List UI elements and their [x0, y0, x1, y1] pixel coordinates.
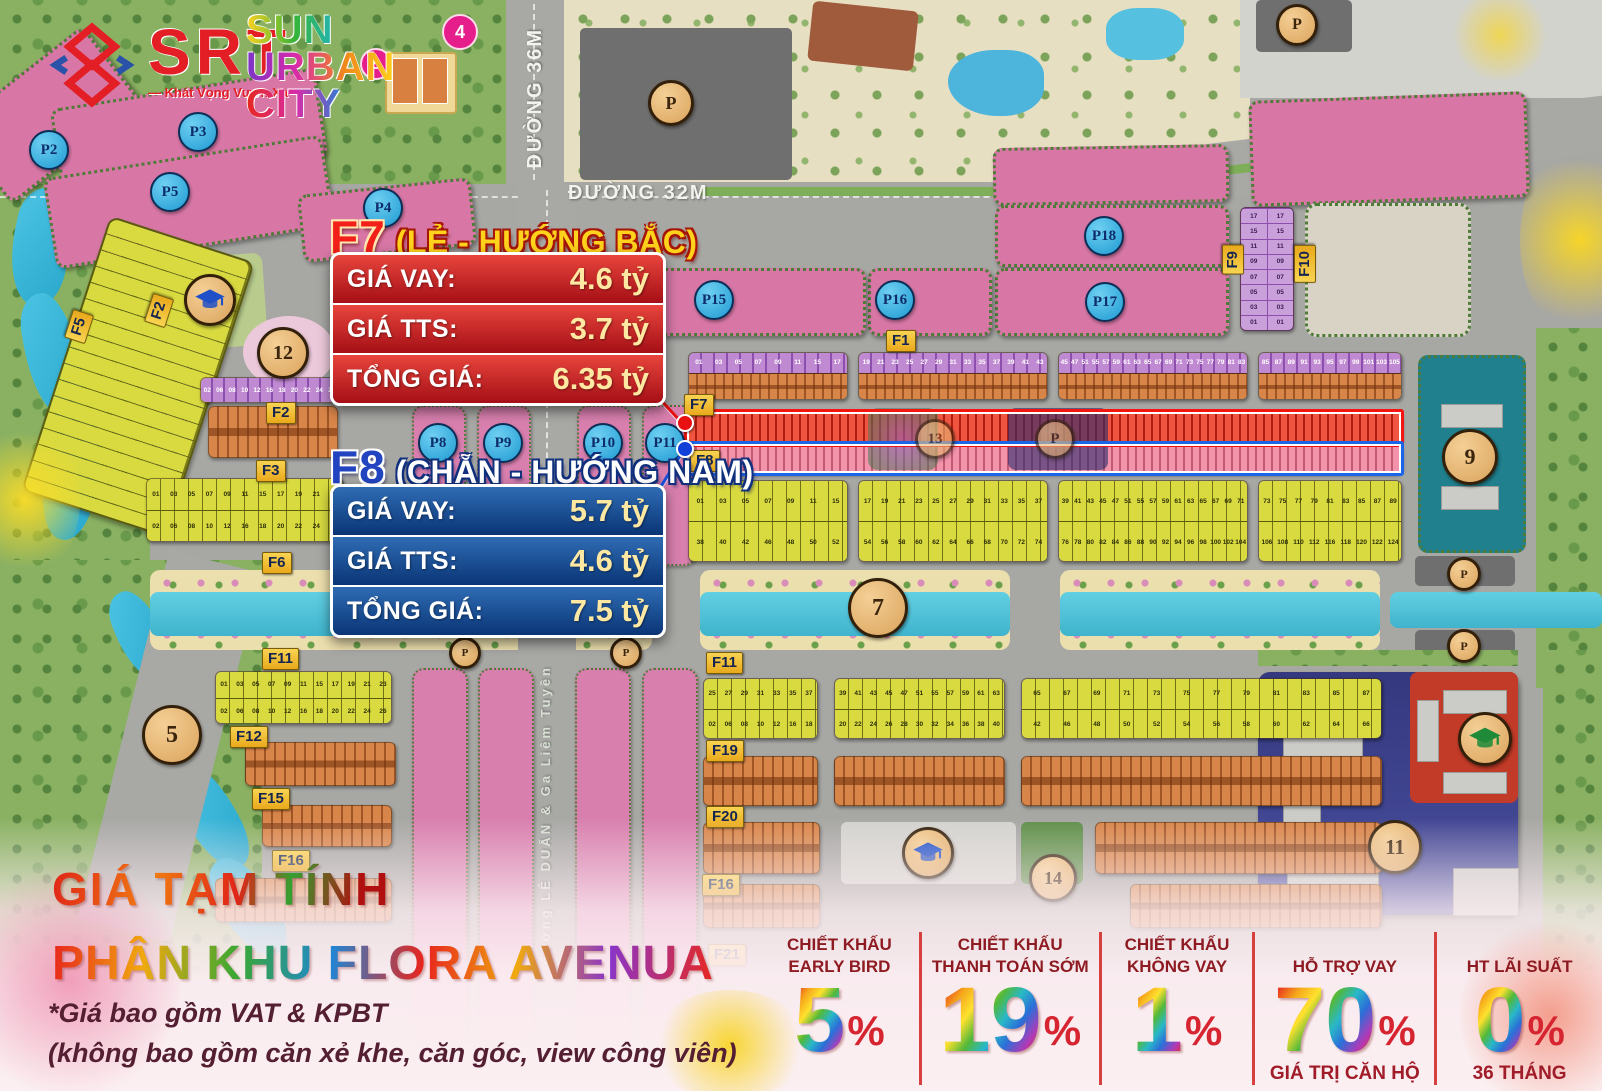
parking-circle-P3: P3 — [178, 112, 218, 152]
lot-strip: 1719212325272931333537545658606264666870… — [858, 480, 1048, 562]
lot-row: 0101 — [1241, 316, 1293, 330]
f7-price-row: GIÁ VAY:4.6 tỷ — [333, 255, 663, 303]
lot-numbers: 38404246485052 — [689, 522, 847, 562]
block-label-F15: F15 — [252, 788, 290, 810]
lot-strip: 0103050709111517192123020608101216182022… — [215, 671, 392, 724]
map-circle-7: 7 — [848, 578, 908, 638]
price-value: 4.6 tỷ — [570, 261, 649, 297]
block-label-F11: F11 — [262, 648, 299, 670]
lot-strip — [245, 742, 396, 786]
map-circle-P: P — [1035, 419, 1075, 459]
lot-numbers: 0103050709111517192123 — [216, 672, 391, 699]
lot-roofs — [859, 373, 1047, 400]
building — [1441, 486, 1499, 510]
road-label-32m: ĐƯỜNG 32M — [568, 182, 709, 205]
lot-numbers: 3941434547515557596163 — [835, 679, 1004, 710]
map-circle-5: 5 — [142, 705, 202, 765]
discount-value: 19% — [939, 980, 1081, 1061]
discount-value: 0% — [1474, 980, 1565, 1061]
lot-numbers: 0103050709111517 — [689, 353, 847, 373]
building — [1443, 772, 1507, 794]
lot-numbers: 424648505254565860626466 — [1022, 710, 1381, 740]
lot-strip — [834, 756, 1005, 806]
lot-numbers: 5456586062646668707274 — [859, 522, 1047, 562]
lot-strip: 19212325272931333537394143 — [858, 352, 1048, 400]
flower-blob-yellow — [1520, 140, 1602, 340]
sun-logo-line3: CITY — [246, 86, 395, 123]
discount-item: CHIẾT KHẤUKHÔNG VAY1% — [1099, 932, 1253, 1085]
percent-sign: % — [1185, 1007, 1222, 1055]
lot-row: 1717 — [1241, 209, 1293, 223]
lot-roofs — [1059, 373, 1247, 400]
sun-logo-line2: URBAN — [246, 49, 395, 86]
sun-urban-city-logo: SUN URBAN CITY — [246, 12, 395, 122]
block-label-F10: F10 — [1294, 245, 1316, 283]
lot-numbers: 0206081012161820222426 — [147, 511, 343, 542]
lot-strip: 6567697173757779818385874246485052545658… — [1021, 678, 1382, 739]
discount-number: 1 — [1132, 980, 1183, 1061]
lot-strip — [1021, 756, 1382, 806]
road-label-36m: ĐƯỜNG 36M — [524, 28, 547, 169]
map-circle-P: P — [449, 637, 481, 669]
lot-row: 0707 — [1241, 270, 1293, 284]
f7-price-row: TỔNG GIÁ:6.35 tỷ — [333, 353, 663, 403]
lot-roofs — [1259, 373, 1401, 400]
f8-price-row: GIÁ TTS:4.6 tỷ — [333, 535, 663, 585]
masterplan-poster: ĐƯỜNG 36M ĐƯỜNG 32M đường LÊ DUẨN & Ga L… — [0, 0, 1602, 1091]
block-label-F3: F3 — [256, 460, 286, 482]
lot-strip: 2527293133353702060810121618 — [703, 678, 818, 739]
poi-circle-4: 4 — [442, 14, 478, 50]
map-circle-P: P — [1447, 629, 1481, 663]
lot-numbers: 394143454751555759616365676971 — [1059, 481, 1247, 522]
lot-row: 0303 — [1241, 301, 1293, 315]
footer-title-2: PHÂN KHU FLORA AVENUA — [52, 936, 714, 991]
block-label-F11: F11 — [706, 652, 743, 674]
lot-numbers: 0206081012161820222426 — [201, 378, 338, 402]
parking-circle-P16: P16 — [875, 280, 915, 320]
lot-strip: 17171515111109090707050503030101 — [1240, 207, 1294, 331]
lot-numbers: 454751555759616365676971737577798183 — [1059, 353, 1247, 373]
discount-value: 5% — [794, 980, 885, 1061]
footer-note-2: (không bao gồm căn xẻ khe, căn góc, view… — [48, 1038, 737, 1069]
block-label-F7: F7 — [684, 394, 714, 416]
block-label-F6: F6 — [262, 552, 292, 574]
discount-item: HT LÃI SUẤT0%36 THÁNG — [1434, 932, 1602, 1085]
block-p15 — [655, 268, 866, 336]
discount-item: HỖ TRỢ VAY70%GIÁ TRỊ CĂN HỘ — [1252, 932, 1434, 1085]
lot-numbers: 656769717375777981838587 — [1022, 679, 1381, 710]
lot-row: 0505 — [1241, 285, 1293, 299]
block-pink — [993, 144, 1230, 206]
park-right-strip — [1536, 328, 1602, 688]
footer-note-1: *Giá bao gồm VAT & KPBT — [48, 998, 388, 1029]
discount-number: 19 — [939, 980, 1041, 1061]
lot-strip: 0103050709111517192123020608101216182022… — [146, 478, 344, 542]
lot-row: 1111 — [1241, 240, 1293, 254]
canal-water — [1060, 592, 1380, 636]
price-label: TỔNG GIÁ: — [347, 365, 483, 394]
discount-item: CHIẾT KHẤUEARLY BIRD5% — [760, 932, 919, 1085]
lot-strip: 3941434547515557596163202224262830323436… — [834, 678, 1005, 739]
map-circle-12: 12 — [257, 327, 309, 379]
lot-strip: 454751555759616365676971737577798183 — [1058, 352, 1248, 400]
lot-strip — [703, 756, 818, 806]
percent-sign: % — [1044, 1007, 1081, 1055]
pool — [1106, 8, 1184, 60]
f8-price-row: GIÁ VAY:5.7 tỷ — [333, 487, 663, 535]
discount-number: 0 — [1474, 980, 1525, 1061]
map-circle-9: 9 — [1442, 429, 1498, 485]
parking-circle-P18: P18 — [1084, 216, 1124, 256]
lot-numbers: 02060810121618 — [704, 710, 817, 740]
parking-circle-P17: P17 — [1085, 282, 1125, 322]
dot-red — [676, 414, 694, 432]
percent-sign: % — [1528, 1007, 1565, 1055]
lot-numbers: 737577798183858789 — [1259, 481, 1401, 522]
block-label-F12: F12 — [230, 726, 268, 748]
price-value: 3.7 tỷ — [570, 311, 649, 347]
castle-building — [807, 1, 919, 72]
school-icon — [184, 274, 236, 326]
map-circle-P: P — [1276, 4, 1318, 46]
percent-sign: % — [847, 1007, 884, 1055]
lot-row: 1515 — [1241, 224, 1293, 238]
price-label: GIÁ VAY: — [347, 497, 456, 526]
lot-row: 0909 — [1241, 255, 1293, 269]
lot-numbers: 2022242628303234363840 — [835, 710, 1004, 740]
lot-numbers: 0103050709111517192123 — [147, 479, 343, 511]
footer-title-1: GIÁ TẠM TÍNH — [52, 862, 390, 916]
building — [1443, 690, 1507, 714]
f7-price-row: GIÁ TTS:3.7 tỷ — [333, 303, 663, 353]
school-icon — [1458, 712, 1512, 766]
price-label: TỔNG GIÁ: — [347, 597, 483, 626]
discount-value: 70% — [1274, 980, 1416, 1061]
court-2 — [422, 58, 448, 104]
block-label-F19: F19 — [706, 740, 744, 762]
f8-price-box: GIÁ VAY:5.7 tỷ GIÁ TTS:4.6 tỷ TỔNG GIÁ:7… — [330, 484, 666, 638]
srt-logo-icon — [46, 22, 138, 113]
lot-strip: 8587899193959799101103105 — [1258, 352, 1402, 400]
lot-numbers: 1719212325272931333537 — [859, 481, 1047, 522]
price-value: 6.35 tỷ — [552, 361, 649, 397]
price-value: 5.7 tỷ — [570, 493, 649, 529]
block-label-F1: F1 — [886, 330, 916, 352]
lot-numbers: 106108110112116118120122124 — [1259, 522, 1401, 562]
price-label: GIÁ TTS: — [347, 315, 458, 344]
map-circle-13: 13 — [915, 419, 955, 459]
discount-item: CHIẾT KHẤUTHANH TOÁN SỚM19% — [919, 932, 1099, 1085]
sun-logo-line1: SUN — [246, 12, 395, 49]
lot-numbers: 19212325272931333537394143 — [859, 353, 1047, 373]
price-value: 4.6 tỷ — [570, 543, 649, 579]
building — [1441, 404, 1503, 428]
price-label: GIÁ TTS: — [347, 547, 458, 576]
court-1 — [392, 58, 418, 104]
canal-water — [1390, 592, 1602, 628]
discount-panel: CHIẾT KHẤUEARLY BIRD5%CHIẾT KHẤUTHANH TO… — [760, 932, 1602, 1085]
discount-number: 5 — [794, 980, 845, 1061]
f7-price-box: GIÁ VAY:4.6 tỷ GIÁ TTS:3.7 tỷ TỔNG GIÁ:6… — [330, 252, 666, 406]
price-value: 7.5 tỷ — [570, 593, 649, 629]
map-circle-P: P — [1447, 557, 1481, 591]
discount-number: 70 — [1274, 980, 1376, 1061]
lot-strip: 3941434547515557596163656769717678808284… — [1058, 480, 1248, 562]
lot-numbers: 25272931333537 — [704, 679, 817, 710]
building — [1417, 700, 1439, 762]
lot-strip: 7375777981838587891061081101121161181201… — [1258, 480, 1402, 562]
lot-numbers: 767880828486889092949698100102104 — [1059, 522, 1247, 562]
discount-value: 1% — [1132, 980, 1223, 1061]
lot-strip: 0103050709111517 — [688, 352, 848, 400]
lot-numbers: 8587899193959799101103105 — [1259, 353, 1401, 373]
waterslide-pool — [948, 50, 1044, 116]
parking-circle-P5: P5 — [150, 172, 190, 212]
parking-circle-P2: P2 — [29, 130, 69, 170]
block-label-F9: F9 — [1222, 245, 1244, 275]
lot-numbers: 0206081012161820222426 — [216, 699, 391, 725]
block-label-F2: F2 — [266, 402, 296, 424]
price-label: GIÁ VAY: — [347, 265, 456, 294]
block-beige — [1305, 203, 1471, 337]
map-circle-P: P — [648, 80, 694, 126]
f8-price-row: TỔNG GIÁ:7.5 tỷ — [333, 585, 663, 635]
road-median — [700, 187, 1000, 196]
block-pink — [1248, 91, 1530, 207]
parking-circle-P15: P15 — [694, 280, 734, 320]
lot-strip: 0206081012161820222426 — [200, 377, 339, 403]
percent-sign: % — [1378, 1007, 1415, 1055]
map-circle-P: P — [610, 637, 642, 669]
